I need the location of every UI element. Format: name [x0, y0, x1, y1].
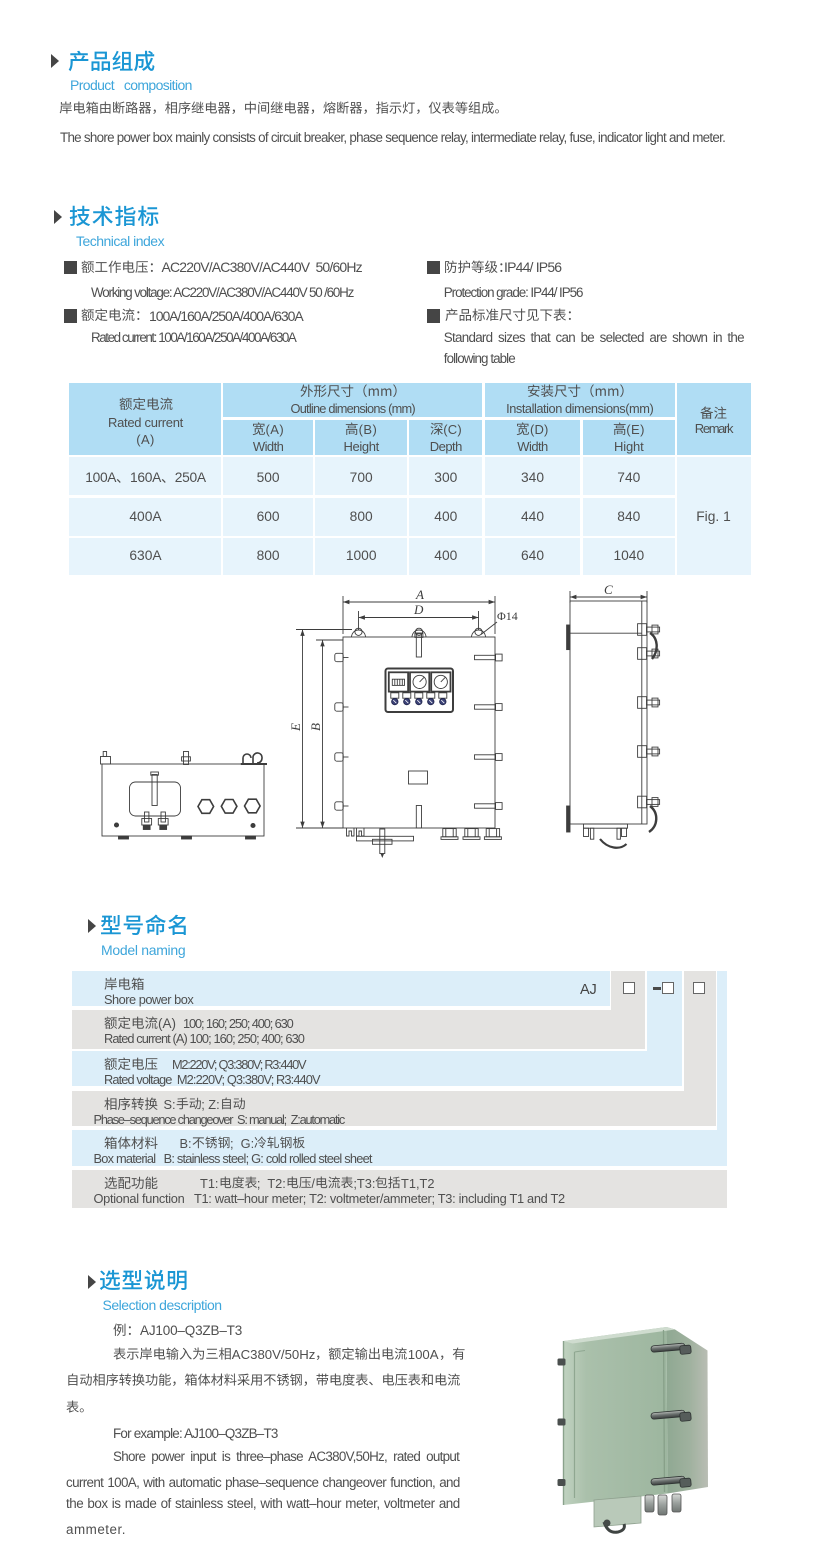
svg-text:Φ14: Φ14: [497, 609, 518, 623]
svg-text:D: D: [413, 602, 424, 617]
svg-text:B: B: [308, 723, 323, 731]
svg-text:C: C: [604, 585, 613, 597]
svg-text:A: A: [415, 587, 424, 602]
svg-text:E: E: [288, 723, 303, 732]
